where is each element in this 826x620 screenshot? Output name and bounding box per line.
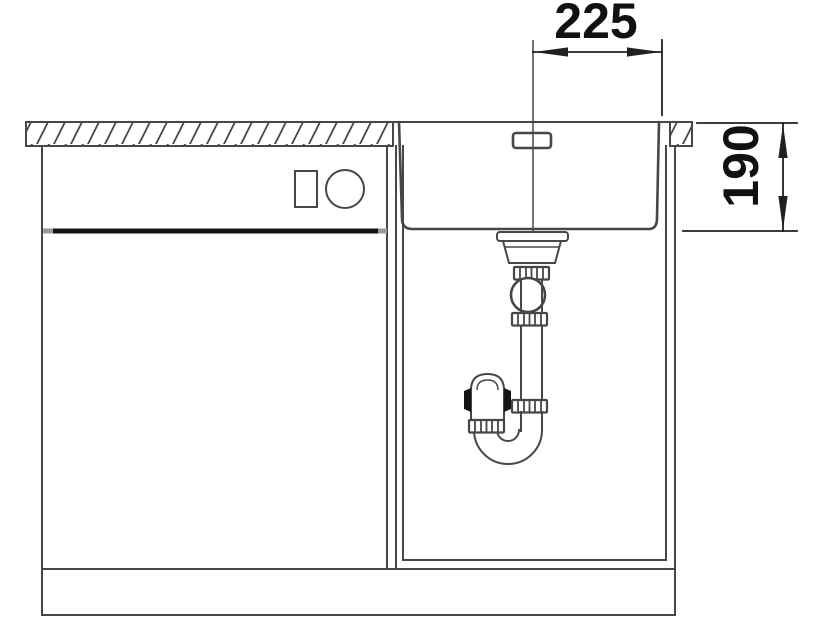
trap-outlet-nut-right-tab [504,388,511,412]
dim-190-label: 190 [713,124,769,207]
trap-outlet-nut-left-tab [464,388,471,412]
drawing-background [0,0,826,620]
sink-installation-diagram: 225 190 [0,0,826,620]
drain-ball-joint [511,278,545,312]
countertop-left-section [26,122,393,146]
dim-225-label: 225 [554,0,637,49]
trap-outlet-elbow [471,374,504,421]
union-nut-trap-inlet [512,400,547,413]
union-nut-trap-outlet [469,420,504,433]
technical-drawing-page: 225 190 [0,0,826,620]
countertop-right-section [670,122,692,146]
union-nut-middle [512,313,547,326]
